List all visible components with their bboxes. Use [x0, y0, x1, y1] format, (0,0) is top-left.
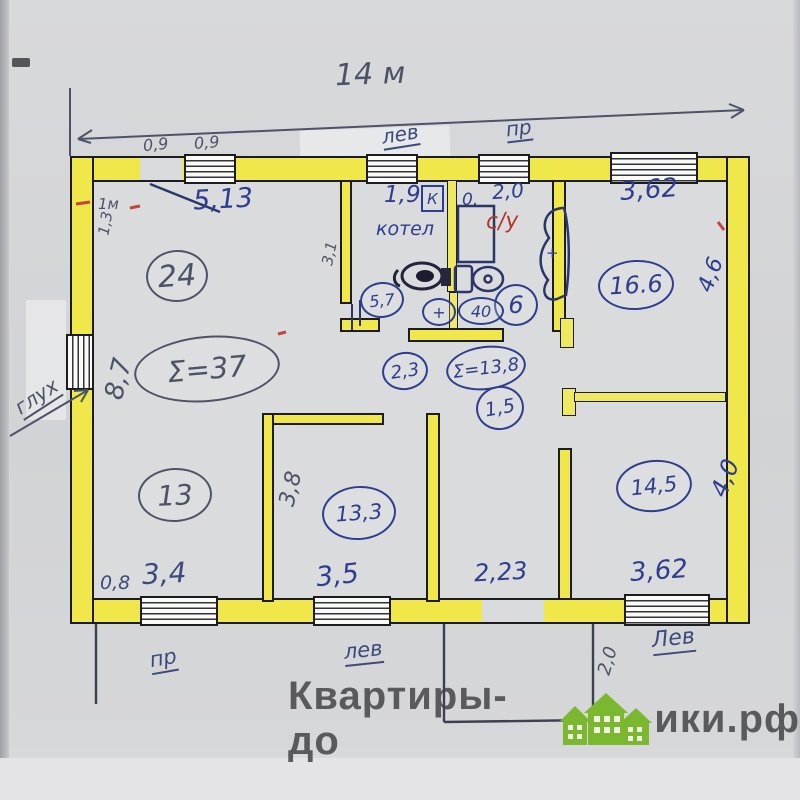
window-label-bottom-mid: лев [343, 638, 384, 667]
exit-door-opening [482, 600, 544, 622]
window-label-bottom-right: Лев [651, 626, 697, 656]
bed-left-dim-b: 3,4 [141, 559, 187, 589]
window-top-1 [184, 154, 236, 184]
left-sum: Σ=37 [166, 349, 248, 390]
watermark-suffix: ики.рф [654, 697, 800, 742]
window-top-2 [366, 154, 418, 184]
boiler-width-dimension: 1,9 [384, 184, 421, 207]
hall-right-stub-top [560, 318, 574, 348]
fixture-40-oval: 40 [458, 297, 504, 325]
fixture-plus: + [432, 303, 445, 322]
window-label-bottom-left: пр [148, 646, 179, 675]
room-right-area: 16.6 [609, 270, 664, 301]
porch-depth-dimension: 2,0 [596, 645, 621, 677]
living-width-dimension: 5,13 [192, 184, 253, 214]
photo-edge-left [0, 0, 9, 800]
hall-b: 1,5 [483, 395, 517, 422]
bed-mid-area: 13,3 [335, 499, 383, 526]
window-bottom-1 [140, 596, 218, 626]
bed-left-dim-a: 0,8 [100, 574, 130, 593]
photo-corner-mark [12, 58, 30, 67]
bed-mid-wall-left [262, 413, 274, 602]
bath-wall-bottom [408, 328, 504, 342]
boiler-symbol-box: К [421, 185, 444, 212]
boiler-wall-left [340, 180, 352, 304]
bath-width-dimension: 2,0 [491, 180, 524, 202]
entrance-door-opening [140, 158, 182, 180]
rooms-right-divider [574, 392, 726, 402]
window-left-wall [66, 334, 94, 390]
outer-wall-left [70, 156, 94, 624]
watermark: Квартиры-до ики.рф [288, 674, 800, 764]
total-width-dimension: 14 м [334, 59, 405, 91]
living-room-area: 24 [157, 257, 198, 295]
watermark-houses-icon [560, 691, 652, 747]
gap-dimension: 0. [462, 192, 478, 209]
bathtub-plus-mark: + [546, 246, 559, 261]
bed-right-wall-left [558, 448, 572, 600]
bed-mid-wall-top [262, 413, 384, 425]
bath-area: 6 [508, 291, 523, 319]
door-width-a: 0,9 [142, 136, 169, 155]
floor-plan-photo: 14 м 0,9 0,9 лев пр 5,13 1,9 К 0. 2,0 3,… [0, 0, 800, 800]
bed-mid-wall-right [426, 413, 440, 602]
hall-a: 2,3 [389, 359, 420, 384]
bed-right-area: 14,5 [629, 472, 678, 501]
left-window-label: глух [11, 375, 63, 421]
boiler-wall-stub [340, 318, 380, 332]
boiler-area: 5,7 [368, 289, 395, 311]
fixture-plus-oval: + [422, 298, 456, 326]
bed-left-area: 13 [156, 478, 193, 513]
hall-width-dimension: 2,23 [473, 559, 528, 586]
door-width-b: 0,9 [193, 134, 220, 152]
bed-right-dim: 3,62 [629, 556, 689, 586]
boiler-room-label: котел [376, 220, 434, 239]
left-top-dimension: 1,3 [96, 210, 115, 236]
bed-mid-dim: 3,5 [315, 560, 361, 591]
room-right-width-dimension: 3,62 [619, 175, 679, 205]
window-bottom-2 [313, 596, 391, 626]
photo-bottom-band [0, 758, 800, 800]
window-label-top-mid: лев [380, 121, 420, 150]
boiler-bath-divider [447, 180, 457, 292]
bathroom-label: с/у [486, 210, 519, 233]
watermark-prefix: Квартиры-до [288, 674, 558, 764]
outer-wall-right [726, 156, 750, 624]
window-bottom-3 [624, 594, 710, 626]
hall-sum: Σ=13,8 [452, 354, 521, 383]
fixture-40: 40 [471, 302, 491, 321]
window-label-top-right: пр [505, 117, 534, 144]
